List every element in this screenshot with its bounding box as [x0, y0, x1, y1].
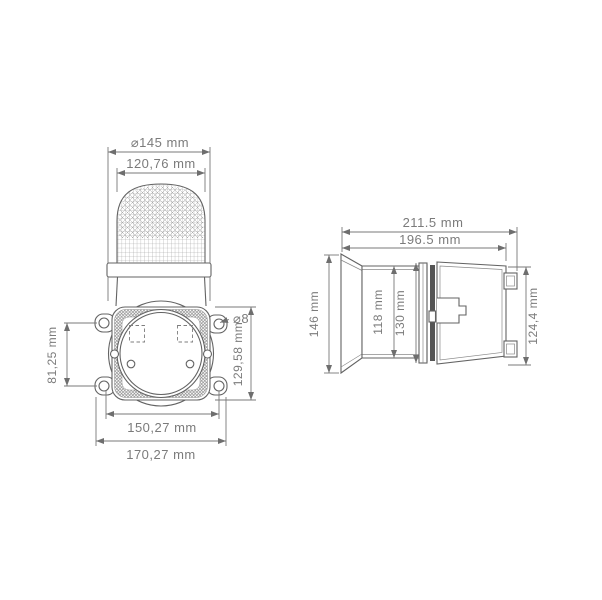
hole-bottom-left — [99, 381, 109, 391]
front-view: ⌀145 mm 120,76 mm 81,25 mm ⌀8 129,58 mm — [45, 135, 256, 462]
flange-inner-circle-outer — [117, 310, 205, 398]
lens-base-band — [107, 263, 211, 277]
dim-label-overall-width: 170,27 mm — [126, 447, 196, 462]
dim-label-overall-length: 211.5 mm — [403, 215, 464, 230]
band-hole-left — [111, 350, 119, 358]
flange-plate-side — [419, 263, 427, 363]
dim-label-lens-diameter: ⌀145 mm — [131, 135, 189, 150]
dim-label-hole-spacing-vertical: 81,25 mm — [45, 326, 59, 383]
lens-dome — [117, 184, 205, 263]
mounting-bracket-bottom — [504, 341, 517, 357]
dim-label-opening-height: 118 mm — [371, 289, 385, 334]
dim-label-lens-width: 120,76 mm — [126, 156, 196, 171]
gasket-notch — [429, 311, 436, 322]
beacon-dimension-drawing: ⌀145 mm 120,76 mm 81,25 mm ⌀8 129,58 mm — [0, 0, 602, 600]
lamp-body-side — [437, 262, 506, 364]
side-view: 211.5 mm 196.5 mm 146 mm 118 mm 130 mm 1… — [307, 215, 540, 373]
mounting-bracket-top — [504, 273, 517, 289]
lens-cone-profile — [341, 254, 362, 373]
lens-dome-crosshatch — [119, 186, 203, 238]
dimension-lens-face-height: 146 mm — [307, 255, 339, 373]
band-hole-right — [204, 350, 212, 358]
dim-label-body-height: 124,4 mm — [526, 287, 540, 344]
dim-label-length-to-flange: 196.5 mm — [399, 232, 461, 247]
dimension-length-to-flange: 196.5 mm — [342, 232, 506, 261]
gasket-band — [429, 265, 436, 361]
hole-top-left — [99, 318, 109, 328]
dim-label-flange-height: 129,58 mm — [231, 322, 245, 387]
technical-drawing-canvas: ⌀145 mm 120,76 mm 81,25 mm ⌀8 129,58 mm — [0, 0, 602, 600]
dim-label-hole-spacing-horizontal: 150,27 mm — [127, 420, 197, 435]
dimension-hole-spacing-vertical: 81,25 mm — [45, 323, 97, 386]
hole-top-right — [214, 319, 224, 329]
hole-bottom-right — [214, 381, 224, 391]
dimension-lens-diameter: ⌀145 mm — [108, 135, 210, 152]
dim-label-flange-plate-height: 130 mm — [393, 290, 407, 336]
dim-label-lens-face-height: 146 mm — [307, 291, 321, 337]
